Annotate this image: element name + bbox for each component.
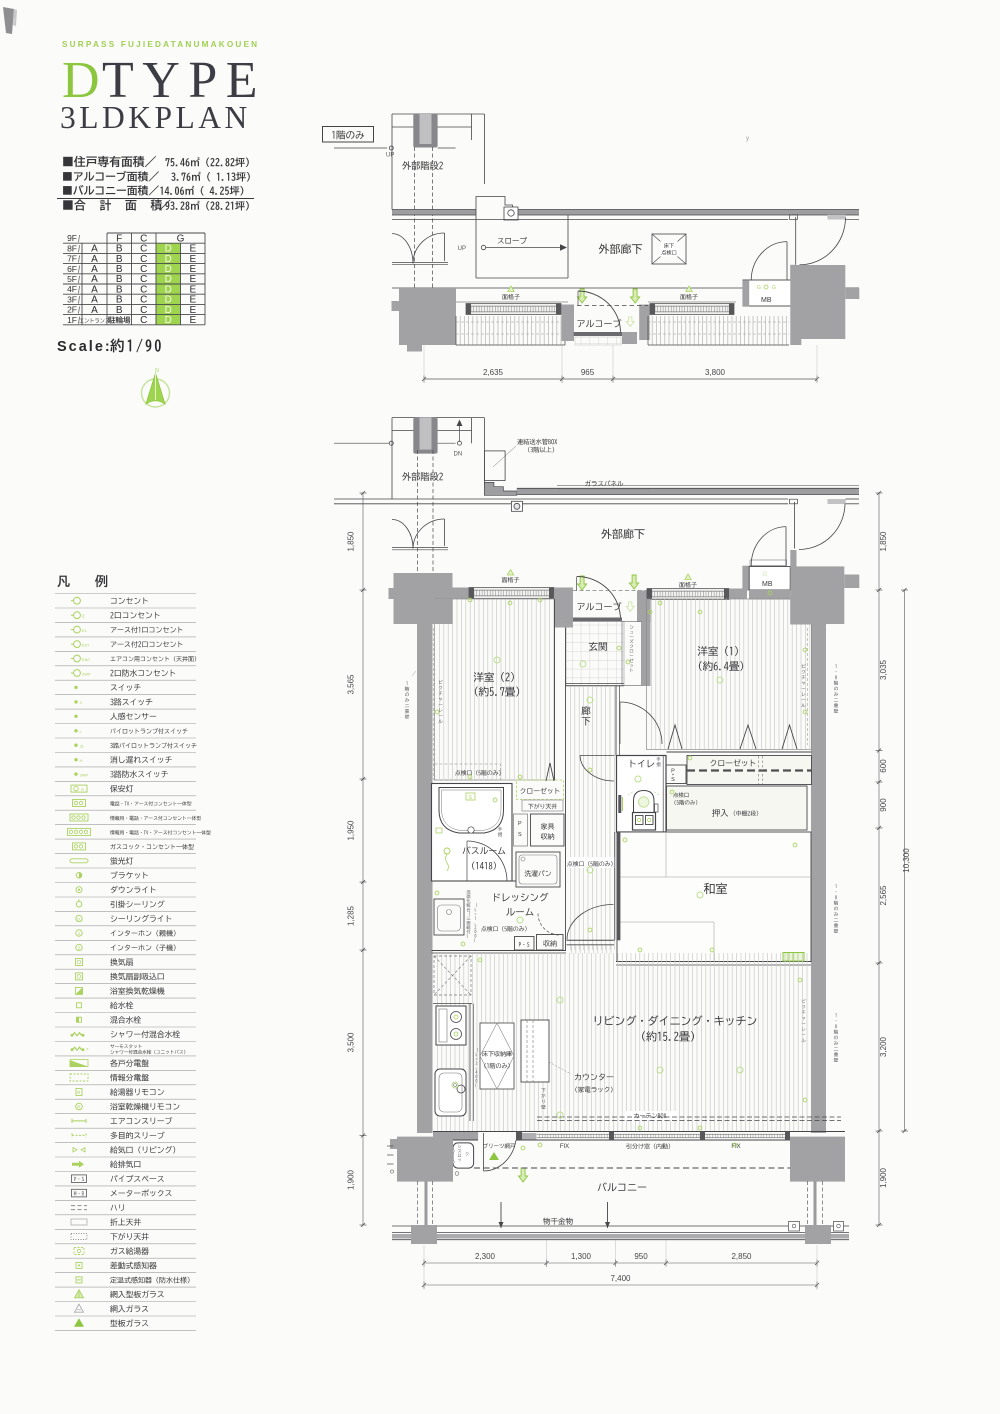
- svg-text:B: B: [116, 305, 123, 316]
- svg-text:EAC: EAC: [82, 657, 90, 662]
- svg-text:2,565: 2,565: [879, 885, 888, 906]
- svg-text:4F: 4F: [67, 284, 77, 294]
- svg-text:3,200: 3,200: [879, 1036, 888, 1057]
- svg-text:C: C: [140, 315, 147, 326]
- svg-text:E2T: E2T: [82, 643, 90, 648]
- svg-text:8F: 8F: [67, 243, 77, 253]
- svg-text:1F: 1F: [67, 315, 77, 325]
- svg-text:3,800: 3,800: [705, 368, 726, 377]
- svg-text:2,300: 2,300: [475, 1252, 496, 1261]
- svg-text:1,900: 1,900: [879, 1167, 888, 1188]
- svg-text:E: E: [189, 315, 196, 326]
- svg-text:G: G: [772, 285, 776, 291]
- svg-text:3,035: 3,035: [879, 659, 888, 680]
- svg-text:DN: DN: [454, 452, 463, 458]
- svg-text:D: D: [165, 315, 172, 326]
- svg-text:1,300: 1,300: [571, 1252, 592, 1261]
- svg-text:A: A: [81, 787, 84, 792]
- svg-text:900: 900: [879, 798, 888, 812]
- svg-text:3,565: 3,565: [347, 674, 356, 695]
- svg-text:9F: 9F: [67, 233, 77, 243]
- svg-text:MB: MB: [761, 297, 772, 304]
- svg-text:6F: 6F: [67, 264, 77, 274]
- svg-text:600: 600: [879, 759, 888, 773]
- svg-text:965: 965: [581, 368, 595, 377]
- svg-text:7F: 7F: [67, 254, 77, 264]
- svg-text:1,285: 1,285: [347, 905, 356, 926]
- svg-text:P: P: [671, 769, 675, 775]
- svg-text:1,850: 1,850: [347, 531, 356, 552]
- svg-text:950: 950: [634, 1252, 648, 1261]
- svg-text:H: H: [80, 758, 83, 763]
- svg-text:3WP: 3WP: [80, 772, 89, 777]
- svg-text:G: G: [177, 233, 185, 244]
- svg-text:CL: CL: [77, 917, 82, 921]
- svg-text:MB: MB: [762, 581, 773, 588]
- svg-text:3L: 3L: [80, 743, 85, 748]
- svg-text:5F: 5F: [67, 274, 77, 284]
- svg-text:UP: UP: [458, 246, 466, 252]
- svg-text:A: A: [91, 305, 98, 316]
- svg-text:Scale:: Scale:: [57, 339, 112, 355]
- svg-text:2WP: 2WP: [82, 672, 91, 677]
- svg-text:G: G: [763, 572, 768, 578]
- svg-text:1,950: 1,950: [347, 820, 356, 841]
- svg-text:UP: UP: [386, 153, 394, 159]
- svg-text:G: G: [757, 285, 761, 291]
- svg-text:1,850: 1,850: [879, 531, 888, 552]
- svg-text:S: S: [518, 832, 522, 838]
- svg-text:2,635: 2,635: [483, 368, 504, 377]
- svg-text:1,900: 1,900: [347, 1169, 356, 1190]
- svg-text:P: P: [518, 821, 522, 827]
- svg-text:2F: 2F: [67, 305, 77, 315]
- svg-text:y: y: [746, 136, 749, 142]
- svg-text:2,850: 2,850: [731, 1252, 752, 1261]
- svg-text:10,300: 10,300: [902, 848, 911, 873]
- svg-text:7,400: 7,400: [610, 1274, 631, 1283]
- svg-text:SURPASS FUJIEDATANUMAKOUEN: SURPASS FUJIEDATANUMAKOUEN: [62, 40, 259, 49]
- svg-text:FIX: FIX: [560, 1144, 569, 1150]
- svg-text:E1: E1: [82, 628, 88, 633]
- svg-text:3LDKPLAN: 3LDKPLAN: [60, 100, 251, 135]
- svg-text:3F: 3F: [67, 294, 77, 304]
- svg-text:N: N: [155, 368, 159, 374]
- svg-text:3,500: 3,500: [347, 1032, 356, 1053]
- svg-text:S: S: [671, 777, 675, 783]
